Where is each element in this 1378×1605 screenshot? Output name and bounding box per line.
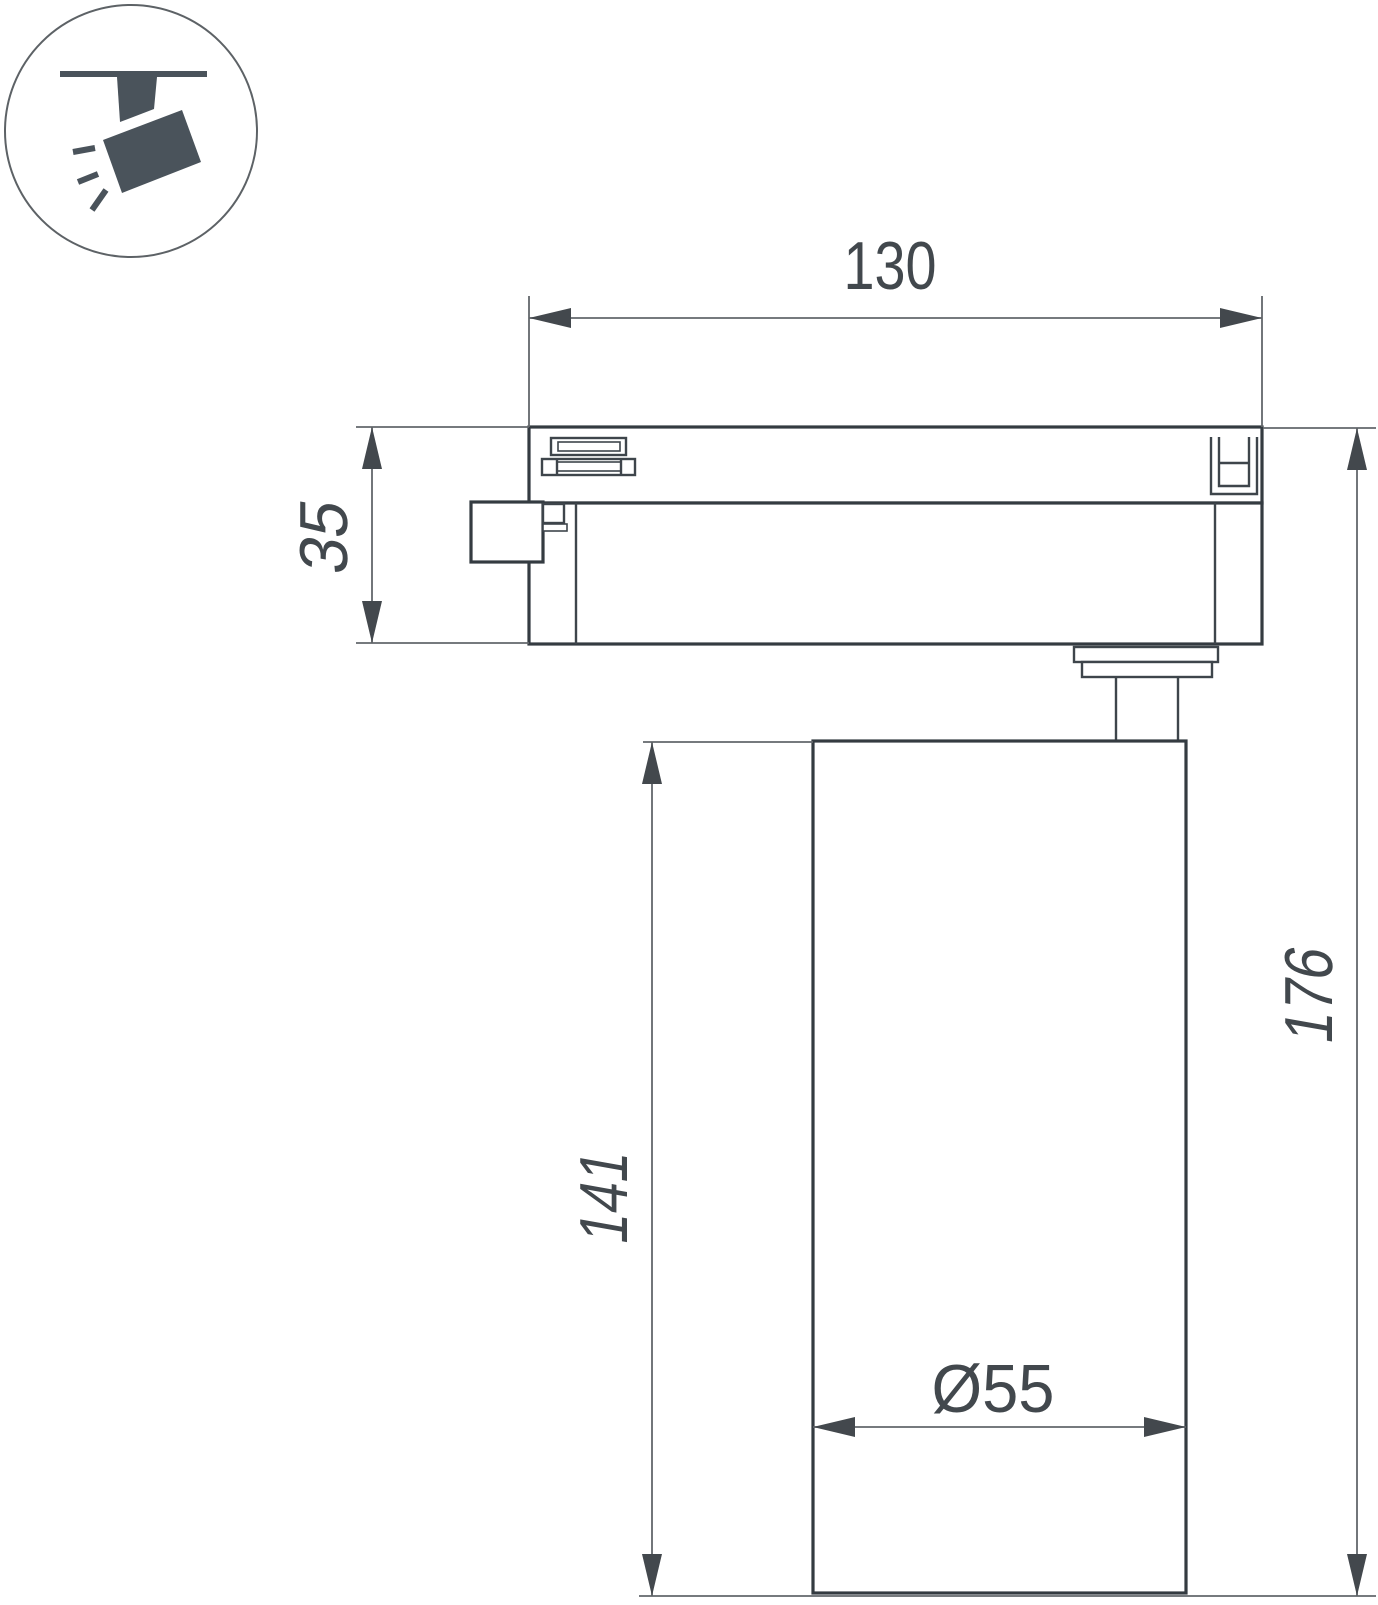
swivel-flange-lower [1082,662,1212,677]
switch-latch-bar [543,524,567,531]
icon-light-ray-1 [73,148,95,152]
dim-130-label: 130 [844,228,937,304]
dimension-drawing: 130 35 141 176 Ø55 [0,0,1378,1605]
dimension-130: 130 [529,228,1262,427]
contact-clip-upper [551,438,626,455]
dim-55-label: Ø55 [932,1351,1055,1427]
lamp-body [813,741,1186,1593]
icon-ceiling-bar [60,71,207,77]
dim-141-label: 141 [565,1144,641,1249]
icon-light-ray-2 [78,174,98,182]
dim-176-arrow-top [1347,428,1367,470]
dimension-141: 141 [565,742,813,1596]
dimension-176: 176 [1263,428,1376,1596]
track-spotlight-icon [5,5,257,257]
dim-130-arrow-left [529,308,571,328]
dim-141-arrow-top [642,742,662,784]
technical-drawing-page: 130 35 141 176 Ø55 [0,0,1378,1605]
track-adapter [471,427,1262,644]
dim-176-label: 176 [1270,940,1346,1048]
dim-176-arrow-bottom [1347,1554,1367,1596]
dim-35-arrow-bottom [362,601,382,643]
icon-lamp-head [103,110,201,193]
swivel-joint [1074,647,1218,741]
swivel-flange-upper [1074,647,1218,662]
adapter-track-connector [529,427,1262,503]
icon-stem-fitting [117,77,157,122]
dim-35-arrow-top [362,427,382,469]
icon-light-ray-3 [92,190,106,210]
dim-141-arrow-bottom [642,1554,662,1596]
adapter-switch-box [471,502,543,562]
switch-latch [543,504,564,523]
adapter-body [529,503,1262,644]
dim-130-arrow-right [1220,308,1262,328]
dim-35-label: 35 [285,494,361,579]
